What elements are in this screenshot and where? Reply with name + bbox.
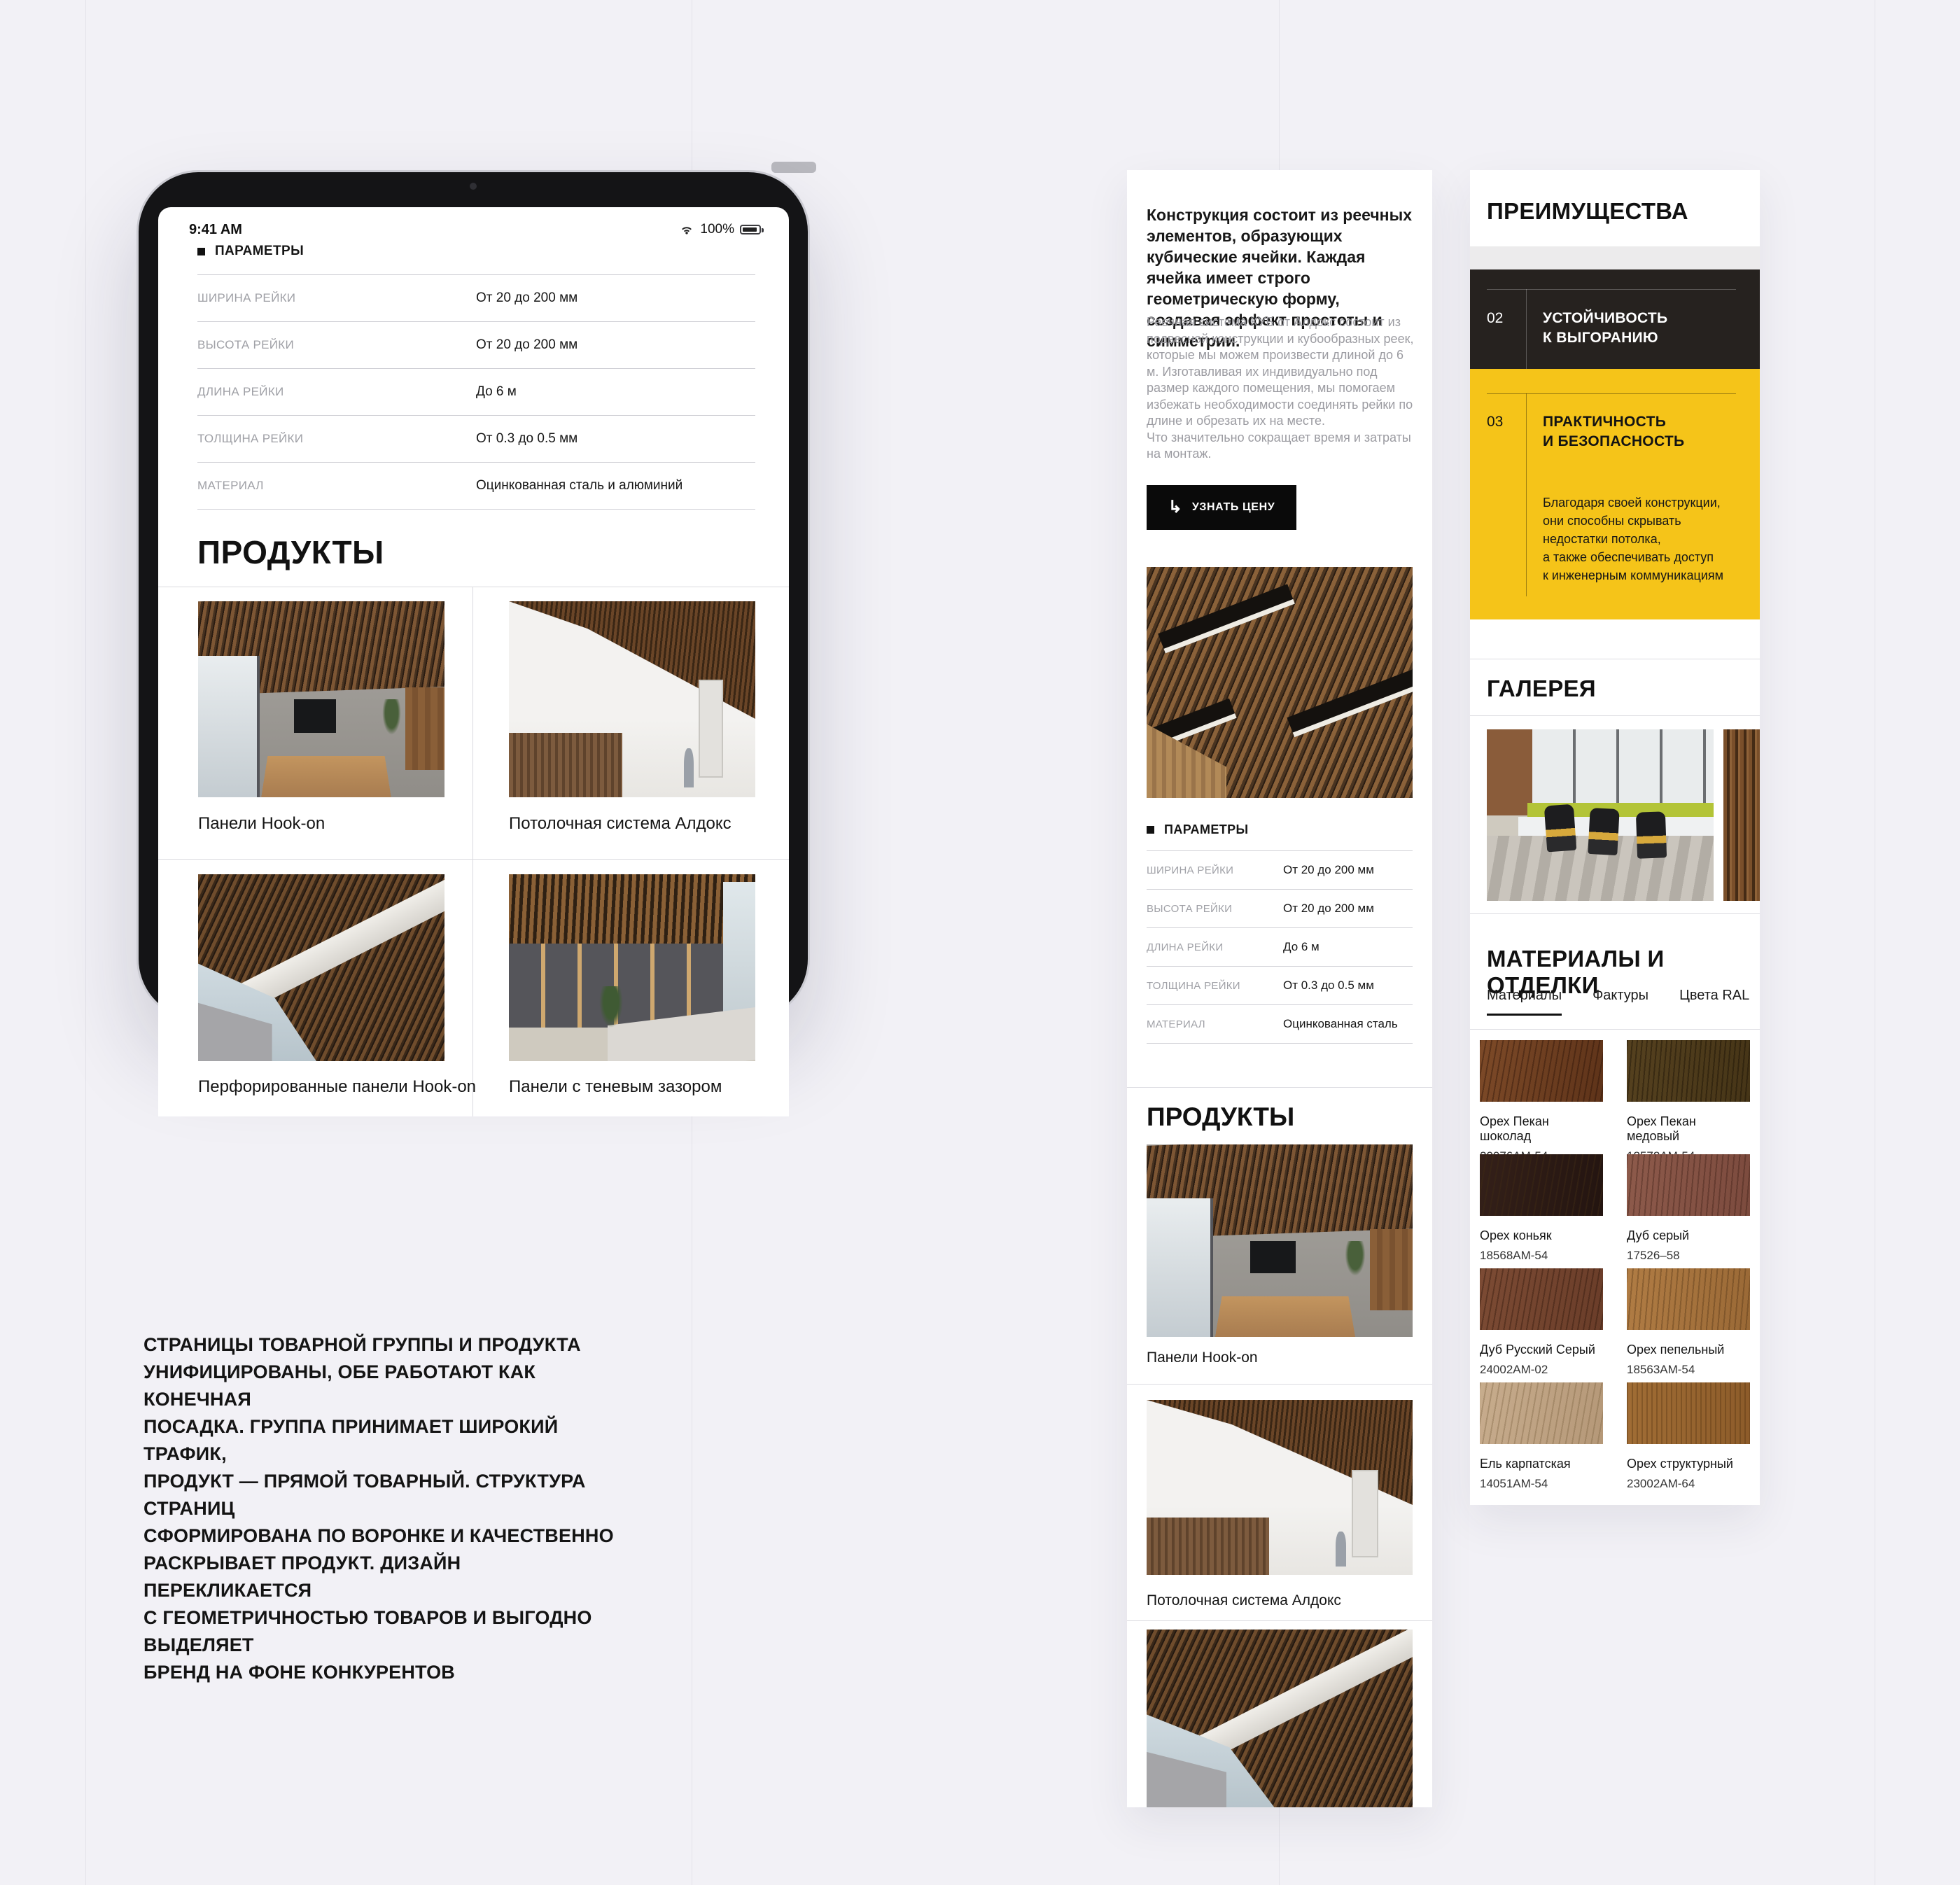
product-image-aldox-system[interactable]	[1147, 1400, 1413, 1575]
table-row: МАТЕРИАЛ Оцинкованная сталь и алюминий	[197, 463, 755, 510]
mobile-params-table: ШИРИНА РЕЙКИ От 20 до 200 мм ВЫСОТА РЕЙК…	[1147, 850, 1413, 1044]
material-swatch[interactable]: Дуб Русский Серый 24002AM-02	[1480, 1268, 1603, 1377]
grid-divider	[472, 587, 473, 1116]
mobile-params-header: ПАРАМЕТРЫ	[1147, 822, 1249, 837]
param-label: ШИРИНА РЕЙКИ	[197, 291, 476, 305]
swatch-name: Ель карпатская	[1480, 1457, 1603, 1471]
material-swatch[interactable]: Орех Пекан медовый 18578AM-54	[1627, 1040, 1750, 1163]
param-value: Оцинкованная сталь	[1283, 1017, 1413, 1031]
product-label[interactable]: Перфорированные панели Hook-on	[198, 1077, 476, 1097]
advantage-item-02[interactable]: 02 УСТОЙЧИВОСТЬ К ВЫГОРАНИЮ	[1470, 269, 1760, 369]
param-value: До 6 м	[1283, 940, 1413, 954]
section-divider	[1470, 715, 1760, 716]
advantages-title: ПРЕИМУЩЕСТВА	[1487, 198, 1688, 225]
table-row: МАТЕРИАЛ Оцинкованная сталь	[1147, 1005, 1413, 1044]
wood-swatch-image	[1480, 1040, 1603, 1102]
table-row: ДЛИНА РЕЙКИ До 6 м	[197, 369, 755, 416]
table-row: ТОЛЩИНА РЕЙКИ От 0.3 до 0.5 мм	[197, 416, 755, 463]
wood-swatch-image	[1627, 1382, 1750, 1444]
divider	[1526, 393, 1527, 596]
tablet-camera-dot	[470, 183, 477, 190]
section-divider	[1127, 1384, 1432, 1385]
product-label[interactable]: Панели Hook-on	[1147, 1350, 1258, 1366]
tablet-params-table: ШИРИНА РЕЙКИ От 20 до 200 мм ВЫСОТА РЕЙК…	[197, 274, 755, 510]
product-image-shadow-gap[interactable]	[509, 874, 755, 1061]
product-label[interactable]: Потолочная система Алдокс	[509, 814, 731, 834]
material-swatch[interactable]: Дуб серый 17526–58	[1627, 1154, 1750, 1263]
param-label: ДЛИНА РЕЙКИ	[197, 385, 476, 399]
param-value: От 20 до 200 мм	[1283, 863, 1413, 877]
advantage-description: Благодаря своей конструкции, они способн…	[1543, 493, 1739, 584]
table-row: ШИРИНА РЕЙКИ От 20 до 200 мм	[1147, 851, 1413, 890]
hero-ceiling-image	[1147, 567, 1413, 798]
product-image-hook-on[interactable]	[1147, 1144, 1413, 1337]
param-label: МАТЕРИАЛ	[197, 479, 476, 493]
swatch-name: Дуб Русский Серый	[1480, 1343, 1603, 1357]
product-label[interactable]: Панели Hook-on	[198, 814, 325, 834]
get-price-label: УЗНАТЬ ЦЕНУ	[1192, 501, 1275, 514]
tab-ral-colors[interactable]: Цвета RAL	[1679, 988, 1749, 1016]
wood-swatch-image	[1627, 1040, 1750, 1102]
square-bullet-icon	[1147, 826, 1154, 834]
material-swatch[interactable]: Орех Пекан шоколад 20076AM-54	[1480, 1040, 1603, 1163]
wood-swatch-image	[1627, 1268, 1750, 1330]
tablet-power-button	[771, 162, 816, 173]
tablet-screen: 9:41 AM 100% ПАРАМЕТРЫ ШИРИНА РЕЙКИ От 2…	[158, 207, 789, 1116]
status-right-cluster: 100%	[679, 222, 761, 237]
advantage-item-03[interactable]: 03 ПРАКТИЧНОСТЬ И БЕЗОПАСНОСТЬ Благодаря…	[1470, 369, 1760, 619]
param-label: ДЛИНА РЕЙКИ	[1147, 941, 1283, 953]
wood-swatch-image	[1480, 1154, 1603, 1216]
get-price-button[interactable]: ↳ УЗНАТЬ ЦЕНУ	[1147, 485, 1296, 530]
product-image-perforated[interactable]	[198, 874, 444, 1061]
grid-divider	[158, 859, 789, 860]
wood-swatch-image	[1480, 1268, 1603, 1330]
param-value: До 6 м	[476, 384, 755, 400]
params-header-label: ПАРАМЕТРЫ	[1164, 822, 1249, 837]
tab-textures[interactable]: Фактуры	[1592, 988, 1648, 1016]
mobile-screen-card-2: ПРЕИМУЩЕСТВА 02 УСТОЙЧИВОСТЬ К ВЫГОРАНИЮ…	[1470, 170, 1760, 1505]
advantage-heading: УСТОЙЧИВОСТЬ К ВЫГОРАНИЮ	[1543, 309, 1667, 348]
section-divider	[1127, 1087, 1432, 1088]
gallery-title: ГАЛЕРЕЯ	[1487, 675, 1596, 702]
materials-tabs: Материалы Фактуры Цвета RAL	[1487, 988, 1749, 1016]
product-label[interactable]: Панели с теневым зазором	[509, 1077, 722, 1097]
tablet-products-grid: Панели Hook-on Потолочная система Алдокс…	[158, 587, 789, 1116]
param-label: ШИРИНА РЕЙКИ	[1147, 864, 1283, 876]
tablet-products-title: ПРОДУКТЫ	[197, 533, 384, 571]
product-label[interactable]: Потолочная система Алдокс	[1147, 1592, 1341, 1609]
advantage-heading: ПРАКТИЧНОСТЬ И БЕЗОПАСНОСТЬ	[1543, 412, 1684, 451]
wifi-icon	[679, 224, 694, 235]
swatch-name: Орех Пекан шоколад	[1480, 1114, 1603, 1144]
param-value: От 0.3 до 0.5 мм	[476, 431, 755, 447]
tablet-status-bar: 9:41 AM 100%	[189, 220, 761, 239]
swatch-name: Орех структурный	[1627, 1457, 1750, 1471]
grid-line	[1875, 0, 1875, 1885]
product-description-text: Реечная система КУБ от Алдокс состоит из…	[1147, 314, 1415, 463]
grid-line	[85, 0, 86, 1885]
battery-percent: 100%	[700, 222, 734, 237]
divider	[1526, 289, 1527, 369]
swatch-name: Орех коньяк	[1480, 1228, 1603, 1243]
wood-swatch-image	[1627, 1154, 1750, 1216]
arrow-right-icon: ↳	[1168, 499, 1182, 516]
table-row: ТОЛЩИНА РЕЙКИ От 0.3 до 0.5 мм	[1147, 967, 1413, 1005]
design-presentation-page: 9:41 AM 100% ПАРАМЕТРЫ ШИРИНА РЕЙКИ От 2…	[0, 0, 1960, 1885]
product-image-perforated-partial[interactable]	[1147, 1630, 1413, 1807]
product-image-aldox-system[interactable]	[509, 601, 755, 797]
wood-swatch-image	[1480, 1382, 1603, 1444]
mobile-screen-card: Конструкция состоит из реечных элементов…	[1127, 170, 1432, 1807]
tablet-params-header: ПАРАМЕТРЫ	[197, 244, 304, 259]
swatch-code: 17526–58	[1627, 1249, 1750, 1263]
gallery-image-next-partial[interactable]	[1723, 729, 1760, 901]
material-swatch[interactable]: Орех коньяк 18568AM-54	[1480, 1154, 1603, 1263]
param-label: ТОЛЩИНА РЕЙКИ	[1147, 980, 1283, 992]
advantage-item-partial	[1470, 246, 1760, 269]
section-divider	[1470, 1029, 1760, 1030]
param-value: От 0.3 до 0.5 мм	[1283, 979, 1413, 993]
divider	[1487, 393, 1736, 394]
param-label: ТОЛЩИНА РЕЙКИ	[197, 432, 476, 446]
advantage-number: 02	[1487, 310, 1503, 327]
divider	[1487, 289, 1736, 290]
square-bullet-icon	[197, 248, 205, 255]
swatch-code: 23002AM-64	[1627, 1477, 1750, 1491]
material-swatch[interactable]: Ель карпатская 14051AM-54	[1480, 1382, 1603, 1491]
table-row: ДЛИНА РЕЙКИ До 6 м	[1147, 928, 1413, 967]
swatch-code: 18563AM-54	[1627, 1363, 1750, 1377]
param-value: Оцинкованная сталь и алюминий	[476, 478, 755, 493]
param-value: От 20 до 200 мм	[1283, 902, 1413, 916]
param-label: МАТЕРИАЛ	[1147, 1018, 1283, 1030]
swatch-code: 24002AM-02	[1480, 1363, 1603, 1377]
swatch-code: 18568AM-54	[1480, 1249, 1603, 1263]
advantage-number: 03	[1487, 414, 1503, 430]
section-divider	[1470, 659, 1760, 659]
table-row: ВЫСОТА РЕЙКИ От 20 до 200 мм	[197, 322, 755, 369]
material-swatch[interactable]: Орех пепельный 18563AM-54	[1627, 1268, 1750, 1377]
gallery-image-office[interactable]	[1487, 729, 1714, 901]
swatch-name: Орех пепельный	[1627, 1343, 1750, 1357]
table-row: ВЫСОТА РЕЙКИ От 20 до 200 мм	[1147, 890, 1413, 928]
mobile-products-title: ПРОДУКТЫ	[1147, 1102, 1294, 1132]
swatch-name: Дуб серый	[1627, 1228, 1750, 1243]
annotation-caption: СТРАНИЦЫ ТОВАРНОЙ ГРУППЫ И ПРОДУКТА УНИФ…	[143, 1331, 633, 1686]
swatch-name: Орех Пекан медовый	[1627, 1114, 1750, 1144]
param-label: ВЫСОТА РЕЙКИ	[1147, 903, 1283, 915]
table-row: ШИРИНА РЕЙКИ От 20 до 200 мм	[197, 275, 755, 322]
section-divider	[1470, 913, 1760, 914]
param-value: От 20 до 200 мм	[476, 290, 755, 306]
swatch-code: 14051AM-54	[1480, 1477, 1603, 1491]
params-header-label: ПАРАМЕТРЫ	[215, 244, 304, 259]
param-label: ВЫСОТА РЕЙКИ	[197, 338, 476, 352]
status-time: 9:41 AM	[189, 222, 242, 238]
section-divider	[1127, 1620, 1432, 1621]
battery-icon	[740, 225, 761, 234]
param-value: От 20 до 200 мм	[476, 337, 755, 353]
product-image-hook-on[interactable]	[198, 601, 444, 797]
material-swatch[interactable]: Орех структурный 23002AM-64	[1627, 1382, 1750, 1491]
tab-materials[interactable]: Материалы	[1487, 988, 1562, 1016]
